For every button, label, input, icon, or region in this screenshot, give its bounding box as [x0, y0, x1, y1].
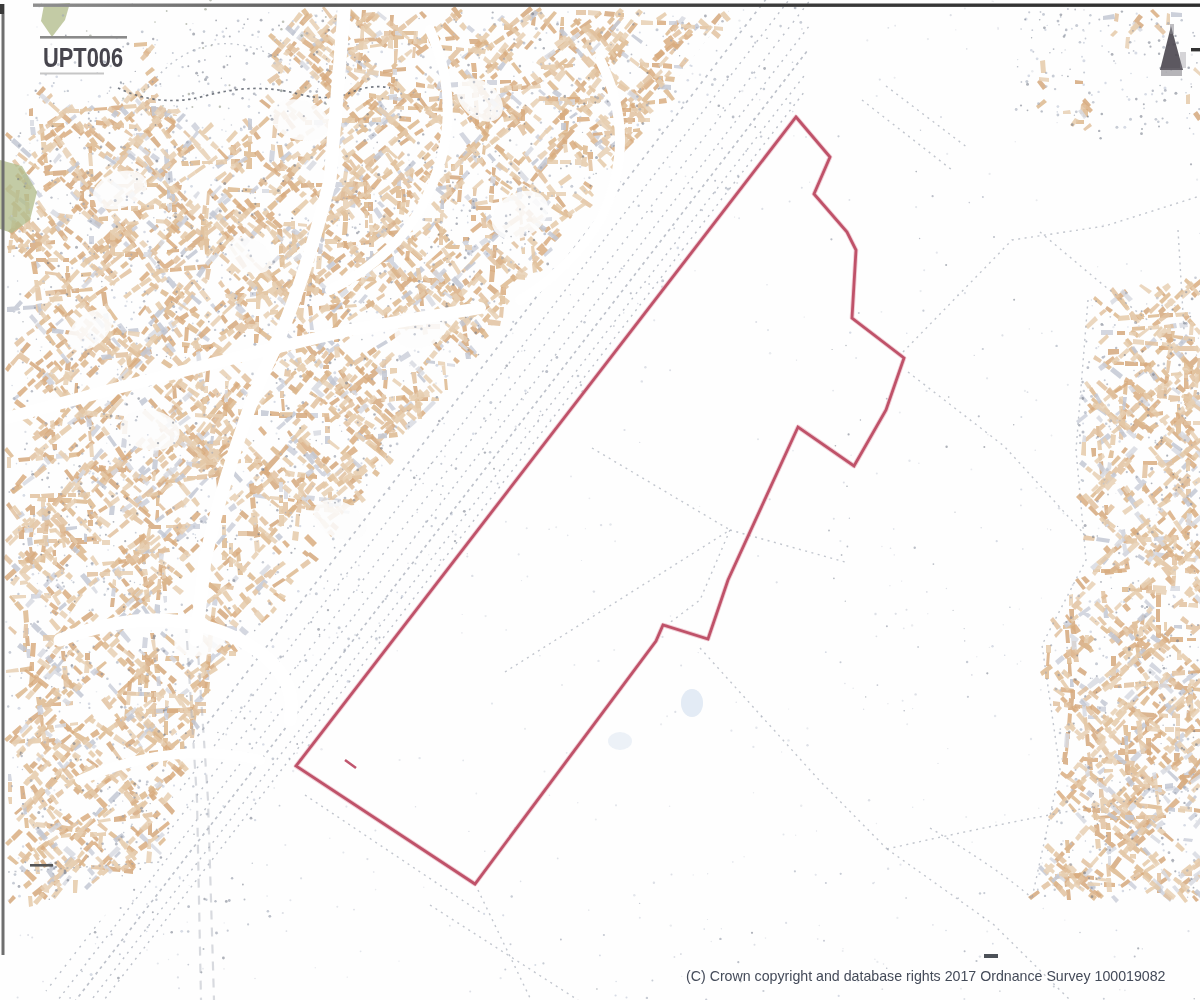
svg-text:UPT006: UPT006 [43, 41, 123, 72]
svg-text:(C) Crown copyright and databa: (C) Crown copyright and database rights … [686, 968, 1166, 984]
